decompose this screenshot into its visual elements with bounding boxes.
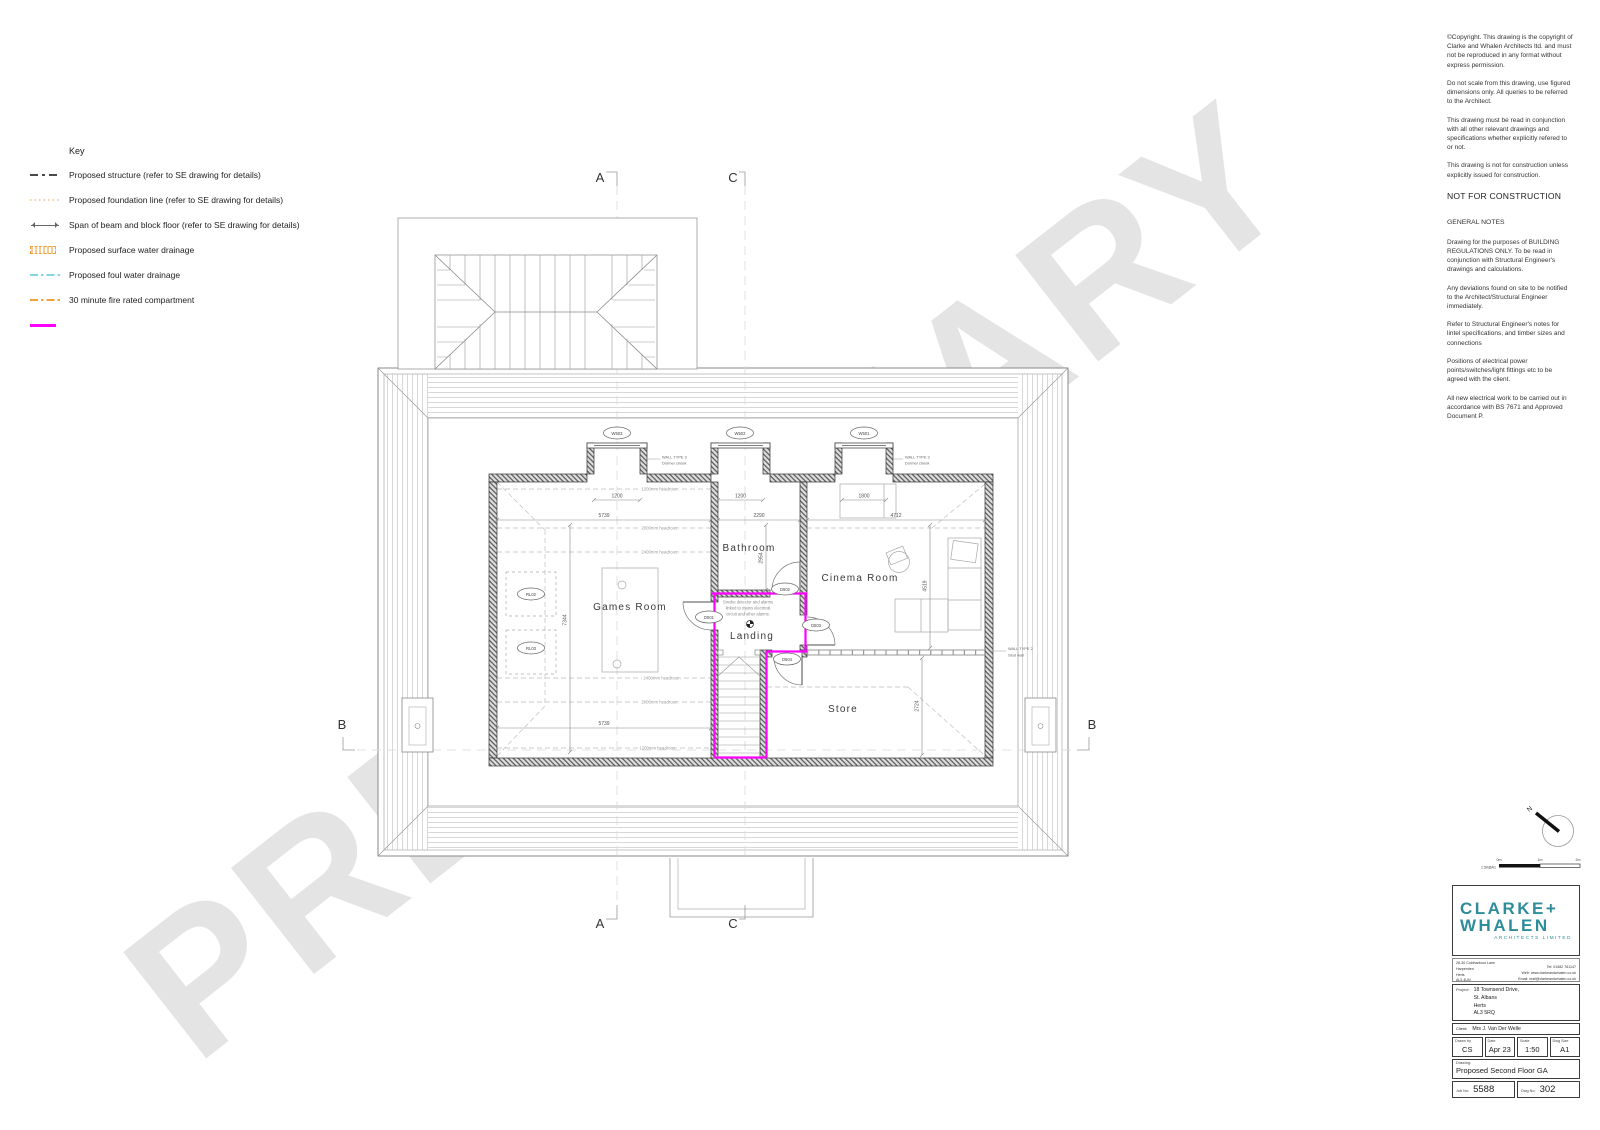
project-line2: St. Albans [1474, 995, 1519, 1003]
key-item-structure: Proposed structure (refer to SE drawing … [30, 169, 350, 181]
general-note-3: Refer to Structural Engineer's notes for… [1447, 320, 1574, 348]
dim-cinema-depth: 4519 [923, 580, 929, 591]
headroom-bottom-1200: 1200mm headroom [639, 746, 677, 751]
door-tag-d503: D503 [811, 623, 822, 628]
drawing-info-fields: Drawn by CS Date Apr 23 Scale 1:50 Dwg S… [1452, 1037, 1580, 1057]
rooflight-window-left [402, 698, 433, 752]
smoke-note-line2: linked to mains electrical [726, 606, 771, 611]
room-label-bathroom: Bathroom [723, 543, 776, 554]
scale-label: Scale [1518, 1039, 1547, 1043]
dim-bathroom-width: 2290 [753, 513, 764, 519]
foundation-line-swatch [30, 199, 60, 201]
wall-type3-label-left-2: Dormer cheek [662, 461, 686, 466]
project-box: Project: 18 Townsend Drive, St. Albans H… [1452, 984, 1580, 1021]
room-label-store: Store [828, 704, 858, 715]
do-not-scale-note: Do not scale from this drawing, use figu… [1447, 79, 1574, 107]
magenta-line-swatch [30, 324, 60, 327]
drawn-by-value: CS [1453, 1045, 1482, 1054]
smoke-detector-icon [747, 621, 754, 628]
wall-type3-label-right-2: Dormer cheek [905, 461, 929, 466]
client-box: Client: Mrs J. Van Der Welle [1452, 1023, 1580, 1035]
job-number-row: Job No: 5588 Dwg No: 302 [1452, 1081, 1580, 1098]
scale-cell: Scale 1:50 [1517, 1037, 1548, 1057]
scale-tick-0m: 0m [1497, 858, 1502, 862]
scale-tick-2m: 2m [1576, 858, 1581, 862]
key-item-label: Span of beam and block floor (refer to S… [69, 220, 300, 230]
drawn-by-cell: Drawn by CS [1452, 1037, 1483, 1057]
scale-bar: 1:50@A1 0m 1m 2m [1481, 858, 1581, 870]
headroom-top-2400: 2400mm headroom [641, 550, 679, 555]
key-item-label: Proposed surface water drainage [69, 245, 194, 255]
headroom-bottom-2000: 2000mm headroom [641, 700, 679, 705]
client-label: Client: [1456, 1026, 1467, 1031]
architect-address: 28-30 Coldharbour Lane Harpenden Herts A… [1456, 961, 1495, 979]
window-tag-w502: W502 [735, 431, 747, 436]
foul-water-swatch [30, 274, 60, 276]
general-notes-title: GENERAL NOTES [1447, 218, 1574, 228]
contact-email: Email: mail@clarkeandwhalen.co.uk [1518, 977, 1576, 983]
surface-water-swatch [30, 246, 60, 254]
logo-subtitle: ARCHITECTS LIMITED [1460, 936, 1572, 941]
date-label: Date [1486, 1039, 1515, 1043]
scale-value: 1:50 [1518, 1045, 1547, 1054]
headroom-top-1200: 1200mm headroom [641, 487, 679, 492]
span-arrow-swatch [30, 225, 60, 226]
address-line4: AL5 4UN [1456, 978, 1495, 984]
date-cell: Date Apr 23 [1485, 1037, 1516, 1057]
key-legend: Key Proposed structure (refer to SE draw… [30, 146, 350, 344]
smoke-note-line1: Smoke detector and alarms [723, 600, 773, 605]
wall-type2-label-1: WALL TYPE 2 [1008, 646, 1033, 651]
not-construction-note: This drawing is not for construction unl… [1447, 161, 1574, 179]
project-line4: AL3 5RQ [1474, 1010, 1519, 1018]
dim-games-width: 5739 [598, 513, 609, 519]
job-number-cell: Job No: 5588 [1452, 1081, 1515, 1098]
key-item-magenta [30, 319, 350, 331]
job-number-label: Job No: [1456, 1089, 1469, 1093]
drawing-title-label: Drawing: [1456, 1061, 1576, 1065]
key-item-foul-water: Proposed foul water drainage [30, 269, 350, 281]
wall-type2-label-2: Stud wall [1008, 653, 1024, 658]
section-marker-c-top: C [728, 170, 737, 185]
key-item-label: 30 minute fire rated compartment [69, 295, 194, 305]
section-marker-a-bottom: A [596, 916, 605, 931]
address-line1: 28-30 Coldharbour Lane [1456, 961, 1495, 967]
section-marker-a-top: A [596, 170, 605, 185]
dim-games-width-bottom: 5739 [598, 721, 609, 727]
logo-line1: CLARKE+ [1460, 900, 1572, 917]
project-address: 18 Townsend Drive, St. Albans Herts AL3 … [1474, 987, 1519, 1018]
door-tag-d501: D501 [704, 615, 715, 620]
bottom-dormer [670, 858, 813, 917]
scale-tick-1m: 1m [1538, 858, 1543, 862]
drawing-title-box: Drawing: Proposed Second Floor GA [1452, 1059, 1580, 1079]
dwg-size-cell: Dwg Size A1 [1550, 1037, 1581, 1057]
project-label: Project: [1456, 987, 1470, 1018]
structure-line-swatch [30, 174, 60, 176]
architect-address-box: 28-30 Coldharbour Lane Harpenden Herts A… [1452, 958, 1580, 982]
dim-cinema-width: 4712 [890, 513, 901, 519]
key-item-label: Proposed structure (refer to SE drawing … [69, 170, 261, 180]
wall-type3-label-left-1: WALL TYPE 3 [662, 455, 687, 460]
drawn-by-label: Drawn by [1453, 1039, 1482, 1043]
dim-games-depth: 7344 [563, 614, 569, 625]
dim-dormer3: 1800 [858, 494, 869, 500]
general-note-4: Positions of electrical power points/swi… [1447, 357, 1574, 385]
key-title: Key [69, 146, 350, 156]
project-line3: Herts [1474, 1003, 1519, 1011]
smoke-note-line3: circuit and other alarms. [726, 612, 770, 617]
general-note-1: Drawing for the purposes of BUILDING REG… [1447, 238, 1574, 275]
notes-column: ©Copyright. This drawing is the copyrigh… [1447, 33, 1574, 430]
section-marker-c-bottom: C [728, 916, 737, 931]
key-item-fire-compartment: 30 minute fire rated compartment [30, 294, 350, 306]
headroom-top-2000: 2000mm headroom [641, 526, 679, 531]
section-marker-b-left: B [338, 717, 347, 732]
door-tag-d504: D504 [782, 657, 793, 662]
room-label-games: Games Room [593, 602, 667, 613]
window-tag-w503: W503 [612, 431, 624, 436]
key-item-label: Proposed foundation line (refer to SE dr… [69, 195, 283, 205]
read-in-conjunction-note: This drawing must be read in conjunction… [1447, 116, 1574, 153]
drawing-title: Proposed Second Floor GA [1456, 1066, 1576, 1075]
scale-bar-label: 1:50@A1 [1481, 866, 1496, 870]
room-label-cinema: Cinema Room [821, 573, 898, 584]
date-value: Apr 23 [1486, 1045, 1515, 1054]
dwg-number-cell: Dwg No: 302 [1517, 1081, 1580, 1098]
not-for-construction-stamp: NOT FOR CONSTRUCTION [1447, 190, 1574, 202]
copyright-note: ©Copyright. This drawing is the copyrigh… [1447, 33, 1574, 70]
roof-plan [378, 368, 1068, 856]
title-block: CLARKE+ WHALEN ARCHITECTS LIMITED 28-30 … [1452, 885, 1580, 1098]
key-item-surface-water: Proposed surface water drainage [30, 244, 350, 256]
dim-dormer2: 1200 [735, 494, 746, 500]
window-tag-w501: W501 [859, 431, 871, 436]
contact-web: Web: www.clarkeandwhalen.co.uk [1518, 971, 1576, 977]
north-arrow: N [1526, 805, 1574, 847]
rooflight-tag-rl03: RL03 [526, 646, 537, 651]
dim-store-depth: 2724 [915, 700, 921, 711]
job-number-value: 5588 [1473, 1084, 1494, 1095]
key-item-label: Proposed foul water drainage [69, 270, 180, 280]
project-line1: 18 Townsend Drive, [1474, 987, 1519, 995]
rooflight-window-right [1025, 698, 1056, 752]
dwg-size-label: Dwg Size [1551, 1039, 1580, 1043]
dim-dormer1: 1200 [611, 494, 622, 500]
secondary-roof-framing [398, 218, 697, 369]
fire-compartment-swatch [30, 299, 60, 301]
headroom-bottom-2400: 2400mm headroom [643, 676, 681, 681]
key-item-span: Span of beam and block floor (refer to S… [30, 219, 350, 231]
door-tag-d502: D502 [780, 587, 791, 592]
north-label: N [1526, 805, 1534, 814]
dwg-size-value: A1 [1551, 1045, 1580, 1054]
key-item-foundation: Proposed foundation line (refer to SE dr… [30, 194, 350, 206]
general-note-5: All new electrical work to be carried ou… [1447, 394, 1574, 422]
rooflight-tag-rl02: RL02 [526, 592, 537, 597]
logo-line2: WHALEN [1460, 917, 1572, 934]
architect-contact: Tel: 01582 761147 Web: www.clarkeandwhal… [1518, 961, 1576, 979]
wall-type3-label-right-1: WALL TYPE 3 [905, 455, 930, 460]
room-label-landing: Landing [730, 631, 774, 642]
general-note-2: Any deviations found on site to be notif… [1447, 284, 1574, 312]
dwg-number-value: 302 [1540, 1084, 1556, 1095]
architect-logo: CLARKE+ WHALEN ARCHITECTS LIMITED [1452, 885, 1580, 956]
section-marker-b-right: B [1088, 717, 1097, 732]
dwg-number-label: Dwg No: [1521, 1089, 1536, 1093]
client-name: Mrs J. Van Der Welle [1472, 1026, 1521, 1032]
